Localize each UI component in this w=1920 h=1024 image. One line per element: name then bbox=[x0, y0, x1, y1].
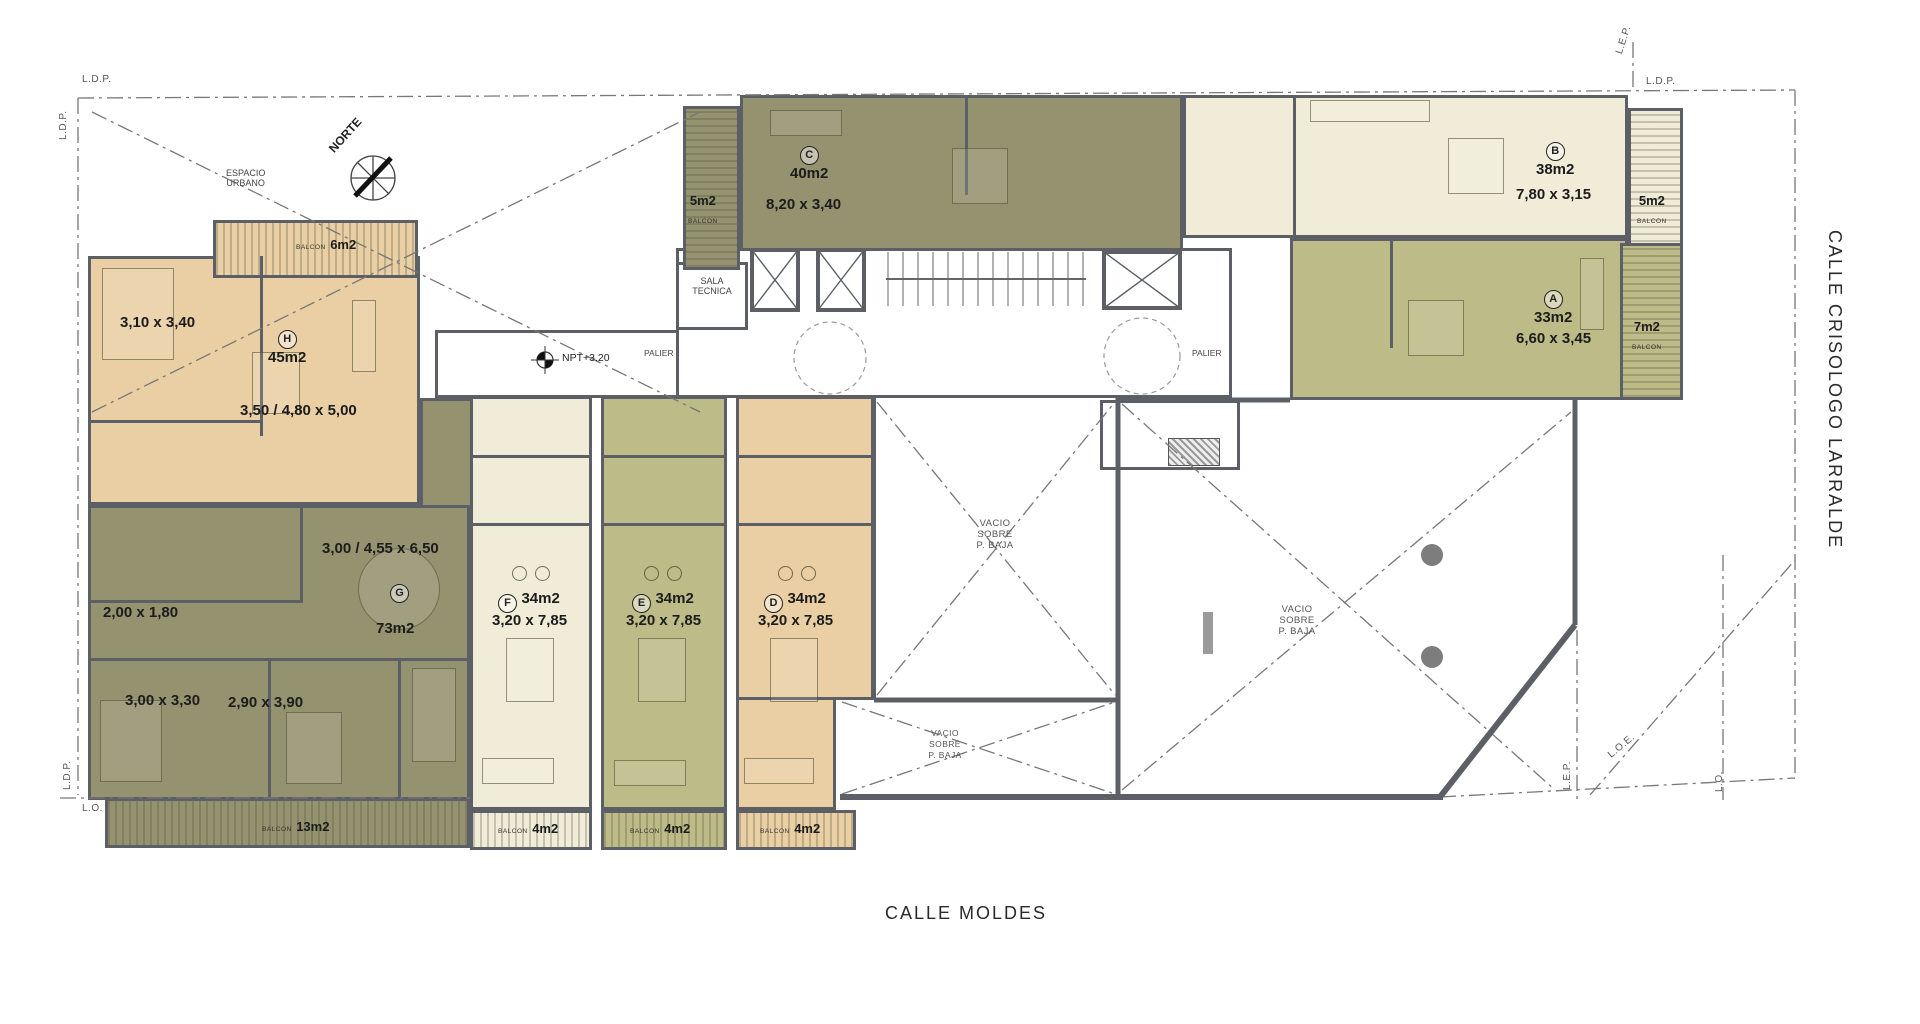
table bbox=[506, 638, 554, 702]
balcony-b-area: 5m2 bbox=[1639, 193, 1665, 208]
north-compass bbox=[351, 156, 395, 200]
bed bbox=[286, 712, 342, 784]
unit-g-dim2: 2,00 x 1,80 bbox=[103, 604, 178, 621]
table bbox=[952, 148, 1008, 204]
balcony-f-area: 4m2 bbox=[532, 821, 558, 836]
unit-d-label: D 34m2 bbox=[764, 590, 826, 613]
balcony-g-label: BALCON 13m2 bbox=[262, 818, 329, 836]
balcony-d-label: BALCON 4m2 bbox=[760, 820, 820, 838]
balcony-g-area: 13m2 bbox=[296, 819, 329, 834]
unit-g-dim4: 2,90 x 3,90 bbox=[228, 694, 303, 711]
vacio-line3: P. BAJA bbox=[977, 540, 1014, 551]
sofa bbox=[744, 758, 814, 784]
npt-label: NPT+3.20 bbox=[562, 352, 610, 364]
balcony-a-label: 7m2 BALCON bbox=[1632, 318, 1662, 354]
circles-decor bbox=[512, 566, 550, 581]
partition bbox=[268, 658, 271, 800]
balcon-text: BALCON bbox=[296, 244, 326, 251]
unit-h-label: H 45m2 bbox=[268, 326, 306, 367]
column bbox=[1421, 544, 1443, 566]
unit-b-area: 38m2 bbox=[1536, 161, 1574, 178]
balcony-h-area: 6m2 bbox=[330, 237, 356, 252]
vacio-line1: VACIO bbox=[931, 728, 959, 738]
sofa bbox=[614, 760, 686, 786]
unit-d-dim: 3,20 x 7,85 bbox=[758, 612, 833, 629]
espacio-line2: URBANO bbox=[226, 178, 265, 188]
unit-e-area: 34m2 bbox=[655, 590, 693, 607]
balcony-f-label: BALCON 4m2 bbox=[498, 820, 558, 838]
service-hatch bbox=[1168, 438, 1220, 466]
table bbox=[1448, 138, 1504, 194]
balcon-text: BALCON bbox=[1637, 218, 1667, 225]
vacio-label: VACIO SOBRE P. BAJA bbox=[960, 518, 1030, 551]
sala-tecnica-room bbox=[676, 262, 748, 330]
balcony-c-label: 5m2 BALCON bbox=[688, 192, 718, 228]
balcon-text: BALCON bbox=[498, 828, 528, 835]
partition bbox=[736, 523, 874, 526]
palier-label: PALIER bbox=[1192, 348, 1222, 358]
circles-decor bbox=[778, 566, 816, 581]
balcon-text: BALCON bbox=[760, 828, 790, 835]
vacio-line2: SOBRE bbox=[977, 529, 1012, 540]
unit-g-letter-wrap: G bbox=[390, 580, 409, 603]
bed bbox=[100, 700, 162, 782]
unit-a-letter: A bbox=[1544, 290, 1563, 309]
unit-g-letter: G bbox=[390, 584, 409, 603]
unit-e-dim: 3,20 x 7,85 bbox=[626, 612, 701, 629]
unit-c-dim: 8,20 x 3,40 bbox=[766, 196, 841, 213]
balcon-text: BALCON bbox=[262, 826, 292, 833]
unit-g-dim3: 3,00 x 3,30 bbox=[125, 692, 200, 709]
balcon-text: BALCON bbox=[630, 828, 660, 835]
partition bbox=[88, 600, 303, 603]
kitchen-counter bbox=[1310, 100, 1430, 122]
sofa bbox=[352, 300, 376, 372]
unit-h-dim: 3,50 / 4,80 x 5,00 bbox=[240, 402, 357, 419]
stair-core bbox=[676, 248, 1232, 398]
unit-a-dim: 6,60 x 3,45 bbox=[1516, 330, 1591, 347]
unit-f-area: 34m2 bbox=[521, 590, 559, 607]
balcony-a-area: 7m2 bbox=[1634, 319, 1660, 334]
unit-g-dim: 3,00 / 4,55 x 6,50 bbox=[322, 540, 439, 557]
unit-e-label: E 34m2 bbox=[632, 590, 694, 613]
street-name-bottom: CALLE MOLDES bbox=[885, 903, 1047, 924]
partition bbox=[601, 455, 727, 458]
vacio-line3: P. BAJA bbox=[928, 750, 961, 760]
sofa bbox=[770, 110, 842, 136]
boundary-label-lep: L.E.P. bbox=[1562, 761, 1573, 790]
unit-b-dim: 7,80 x 3,15 bbox=[1516, 186, 1591, 203]
balcony-e-label: BALCON 4m2 bbox=[630, 820, 690, 838]
partition bbox=[736, 455, 874, 458]
unit-f-letter: F bbox=[498, 594, 517, 613]
vacio-label: VACIO SOBRE P. BAJA bbox=[910, 728, 980, 761]
unit-h-area: 45m2 bbox=[268, 349, 306, 366]
unit-h-dim2: 3,10 x 3,40 bbox=[120, 314, 195, 331]
boundary-label-ldp: L.D.P. bbox=[62, 761, 73, 791]
balcony-c bbox=[683, 106, 740, 270]
unit-f-dim: 3,20 x 7,85 bbox=[492, 612, 567, 629]
espacio-line1: ESPACIO bbox=[226, 168, 265, 178]
vacio-line2: SOBRE bbox=[929, 739, 961, 749]
north-label: NORTE bbox=[326, 115, 365, 156]
street-name-right: CALLE CRISOLOGO LARRALDE bbox=[1824, 230, 1845, 549]
boundary-label-lo: L.O. bbox=[1714, 771, 1725, 792]
partition bbox=[470, 523, 592, 526]
unit-d-lower-block bbox=[736, 697, 836, 810]
partition bbox=[1293, 95, 1296, 238]
unit-c-label: C 40m2 bbox=[790, 142, 828, 183]
partition bbox=[470, 455, 592, 458]
unit-a-area: 33m2 bbox=[1534, 309, 1572, 326]
unit-h-letter: H bbox=[278, 330, 297, 349]
unit-f-label: F 34m2 bbox=[498, 590, 560, 613]
sofa bbox=[482, 758, 554, 784]
partition bbox=[300, 505, 303, 602]
balcony-b-label: 5m2 BALCON bbox=[1637, 192, 1667, 228]
vacio-line1: VACIO bbox=[1282, 604, 1313, 615]
balcony-e-area: 4m2 bbox=[664, 821, 690, 836]
unit-b-letter: B bbox=[1546, 142, 1565, 161]
partition bbox=[1390, 238, 1393, 348]
balcon-text: BALCON bbox=[1632, 344, 1662, 351]
boundary-label-lep: L.E.P. bbox=[1614, 24, 1633, 55]
column bbox=[1203, 612, 1213, 654]
sala-line1: SALA bbox=[700, 276, 723, 286]
table bbox=[770, 638, 818, 702]
unit-b-label: B 38m2 bbox=[1536, 138, 1574, 179]
partition bbox=[601, 523, 727, 526]
partition bbox=[88, 420, 262, 423]
vacio-line1: VACIO bbox=[980, 518, 1011, 529]
balcony-h-label: BALCON 6m2 bbox=[296, 236, 356, 254]
unit-c-area: 40m2 bbox=[790, 165, 828, 182]
boundary-label-ldp: L.D.P. bbox=[1646, 76, 1676, 87]
partition bbox=[88, 658, 473, 661]
floor-plan: CALLE MOLDES CALLE CRISOLOGO LARRALDE L.… bbox=[0, 0, 1920, 1024]
boundary-label-ldp: L.D.P. bbox=[82, 74, 112, 85]
unit-c-letter: C bbox=[800, 146, 819, 165]
unit-d-area: 34m2 bbox=[787, 590, 825, 607]
boundary-label-ldp: L.D.P. bbox=[58, 111, 69, 141]
sala-line2: TECNICA bbox=[692, 286, 732, 296]
unit-a-label: A 33m2 bbox=[1534, 286, 1572, 327]
unit-d-letter: D bbox=[764, 594, 783, 613]
boundary-label-loe: L.O.E. bbox=[1606, 732, 1637, 761]
sala-tecnica-label: SALA TECNICA bbox=[684, 276, 740, 296]
partition bbox=[398, 658, 401, 800]
boundary-label-lo: L.O. bbox=[82, 803, 103, 814]
unit-e-letter: E bbox=[632, 594, 651, 613]
sofa bbox=[412, 668, 456, 762]
column bbox=[1421, 646, 1443, 668]
vacio-line2: SOBRE bbox=[1279, 615, 1314, 626]
table bbox=[1408, 300, 1464, 356]
vacio-line3: P. BAJA bbox=[1279, 626, 1316, 637]
table bbox=[638, 638, 686, 702]
balcon-text: BALCON bbox=[688, 218, 718, 225]
circles-decor bbox=[644, 566, 682, 581]
balcony-d-area: 4m2 bbox=[794, 821, 820, 836]
corridor bbox=[435, 330, 679, 398]
balcony-c-area: 5m2 bbox=[690, 193, 716, 208]
unit-g-kitchen-block bbox=[420, 398, 475, 508]
sofa bbox=[1580, 258, 1604, 330]
espacio-urbano-label: ESPACIO URBANO bbox=[226, 168, 265, 188]
vacio-label: VACIO SOBRE P. BAJA bbox=[1262, 604, 1332, 637]
palier-label: PALIER bbox=[644, 348, 674, 358]
unit-g-area: 73m2 bbox=[376, 620, 414, 637]
